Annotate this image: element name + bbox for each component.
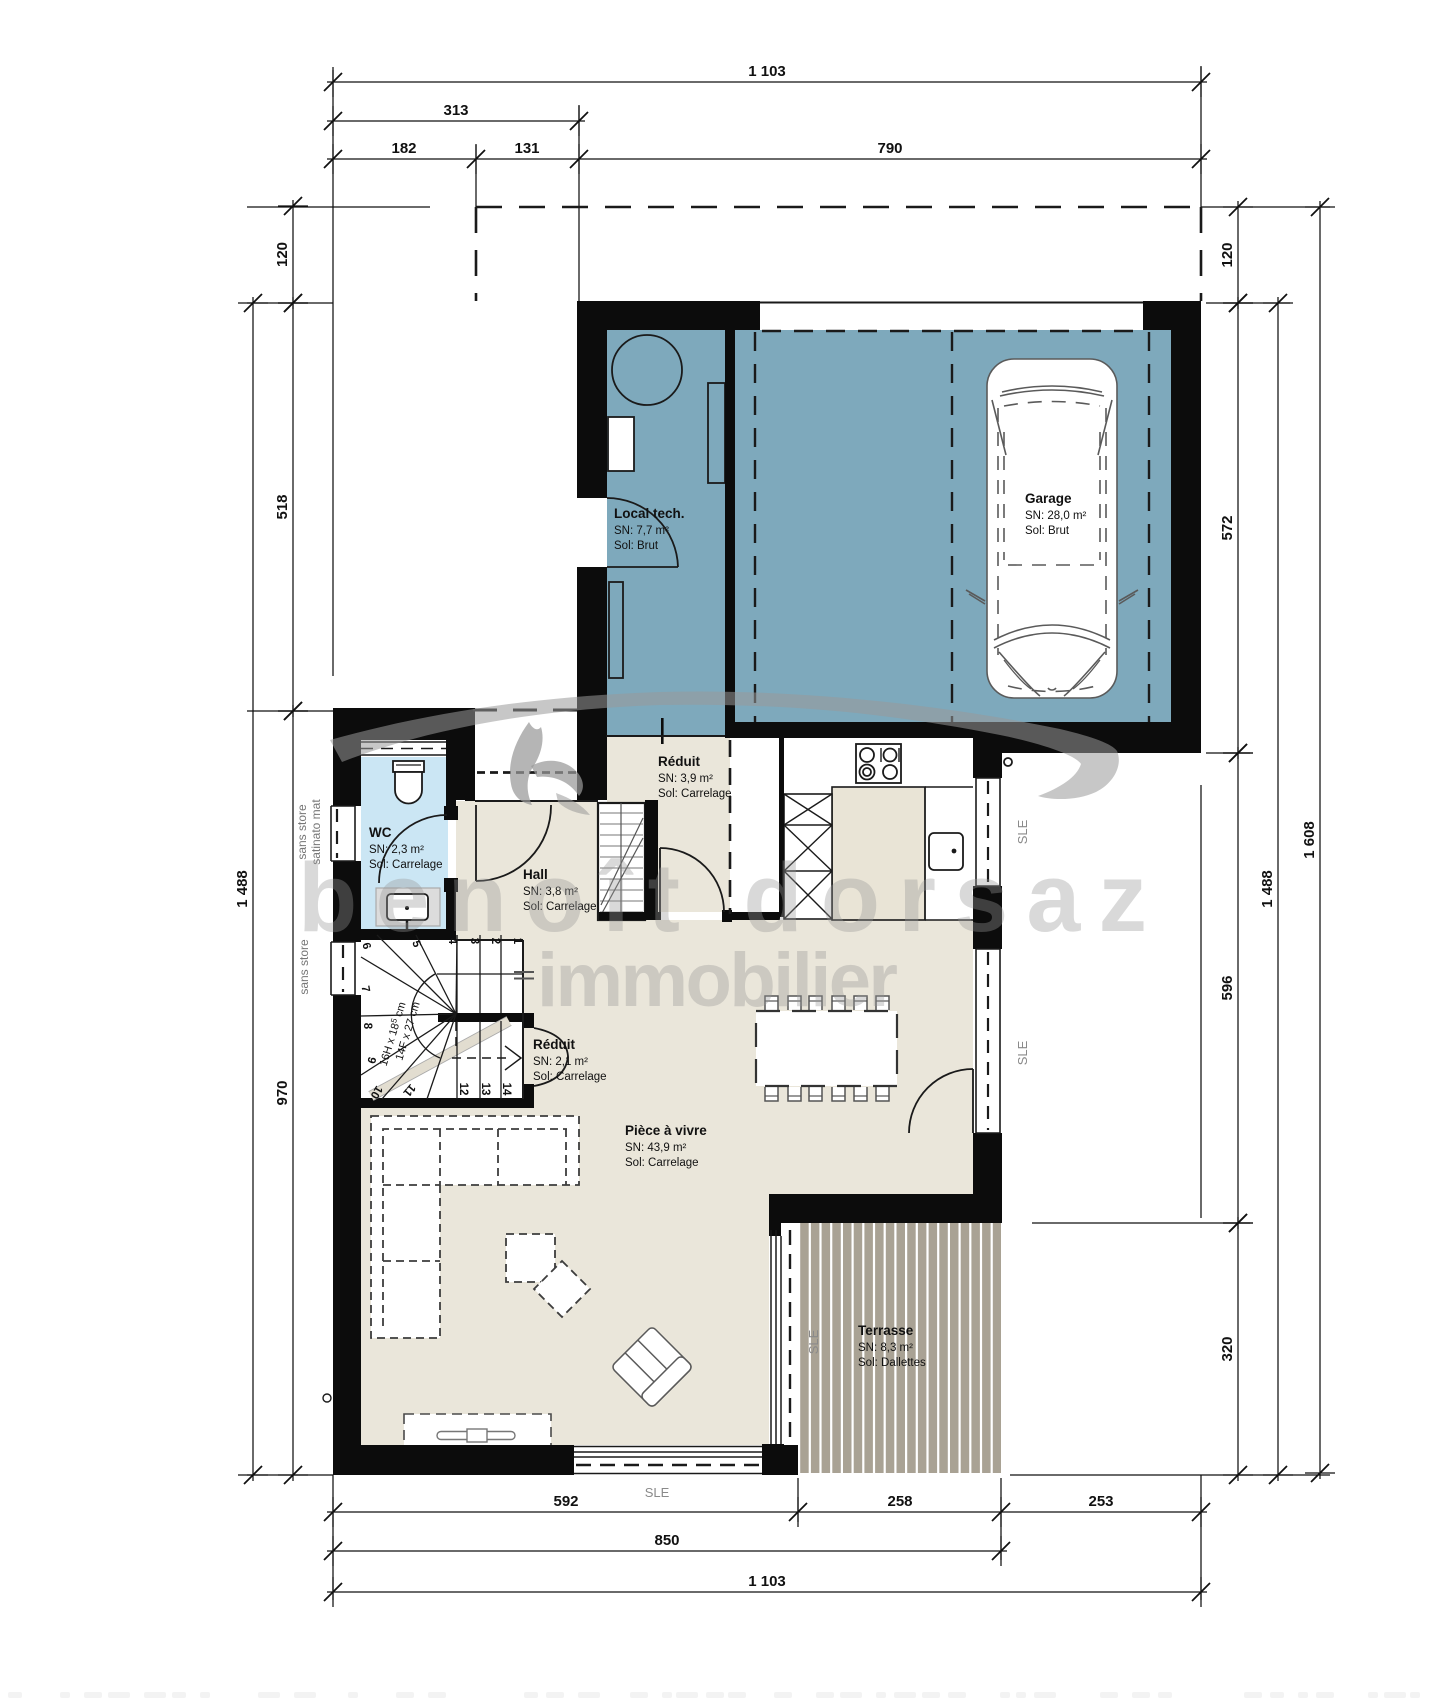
svg-text:Local tech.: Local tech.: [614, 506, 685, 521]
svg-text:320: 320: [1219, 1336, 1236, 1361]
svg-text:Pièce à vivre: Pièce à vivre: [625, 1123, 707, 1138]
svg-text:253: 253: [1088, 1493, 1113, 1510]
svg-text:313: 313: [443, 102, 468, 119]
svg-text:1 608: 1 608: [1301, 821, 1318, 859]
svg-text:1 488: 1 488: [1259, 870, 1276, 908]
svg-text:596: 596: [1219, 975, 1236, 1000]
svg-text:immobilier: immobilier: [537, 938, 899, 1023]
svg-text:131: 131: [514, 140, 539, 157]
svg-text:850: 850: [654, 1532, 679, 1549]
svg-text:Sol: Carrelage: Sol: Carrelage: [625, 1157, 699, 1169]
svg-text:572: 572: [1219, 515, 1236, 540]
svg-text:SN: 8,3 m²: SN: 8,3 m²: [858, 1342, 913, 1354]
svg-text:120: 120: [1219, 242, 1236, 267]
svg-text:1 488: 1 488: [234, 870, 251, 908]
svg-text:790: 790: [877, 140, 902, 157]
svg-text:SN: 2,1 m²: SN: 2,1 m²: [533, 1056, 588, 1068]
svg-text:Garage: Garage: [1025, 491, 1072, 506]
svg-text:518: 518: [274, 494, 291, 519]
svg-text:182: 182: [391, 140, 416, 157]
svg-text:SN: 3,9 m²: SN: 3,9 m²: [658, 773, 713, 785]
svg-text:Réduit: Réduit: [533, 1037, 576, 1052]
svg-text:258: 258: [887, 1493, 912, 1510]
svg-text:Terrasse: Terrasse: [858, 1323, 914, 1338]
svg-text:SLE: SLE: [645, 1485, 670, 1500]
svg-text:970: 970: [274, 1080, 291, 1105]
svg-text:SN: 43,9 m²: SN: 43,9 m²: [625, 1142, 687, 1154]
svg-text:1: 1: [511, 938, 523, 945]
svg-text:Sol: Carrelage: Sol: Carrelage: [533, 1071, 607, 1083]
svg-text:1 103: 1 103: [748, 1573, 786, 1590]
svg-text:120: 120: [274, 242, 291, 267]
svg-text:Sol: Brut: Sol: Brut: [614, 540, 659, 552]
svg-text:SN: 28,0 m²: SN: 28,0 m²: [1025, 510, 1087, 522]
svg-text:SLE: SLE: [1015, 1040, 1030, 1065]
svg-text:13: 13: [479, 1083, 491, 1096]
svg-text:SN: 7,7 m²: SN: 7,7 m²: [614, 525, 669, 537]
svg-text:Sol: Dallettes: Sol: Dallettes: [858, 1357, 926, 1369]
svg-text:Sol: Carrelage: Sol: Carrelage: [658, 788, 732, 800]
svg-text:Sol: Brut: Sol: Brut: [1025, 525, 1070, 537]
svg-text:WC: WC: [369, 825, 392, 840]
svg-text:8: 8: [361, 1023, 373, 1030]
svg-text:14: 14: [500, 1083, 512, 1096]
svg-text:Réduit: Réduit: [658, 754, 701, 769]
svg-text:592: 592: [553, 1493, 578, 1510]
svg-text:12: 12: [457, 1083, 469, 1096]
svg-text:1 103: 1 103: [748, 63, 786, 80]
svg-text:SLE: SLE: [806, 1329, 821, 1354]
svg-text:SLE: SLE: [1015, 819, 1030, 844]
